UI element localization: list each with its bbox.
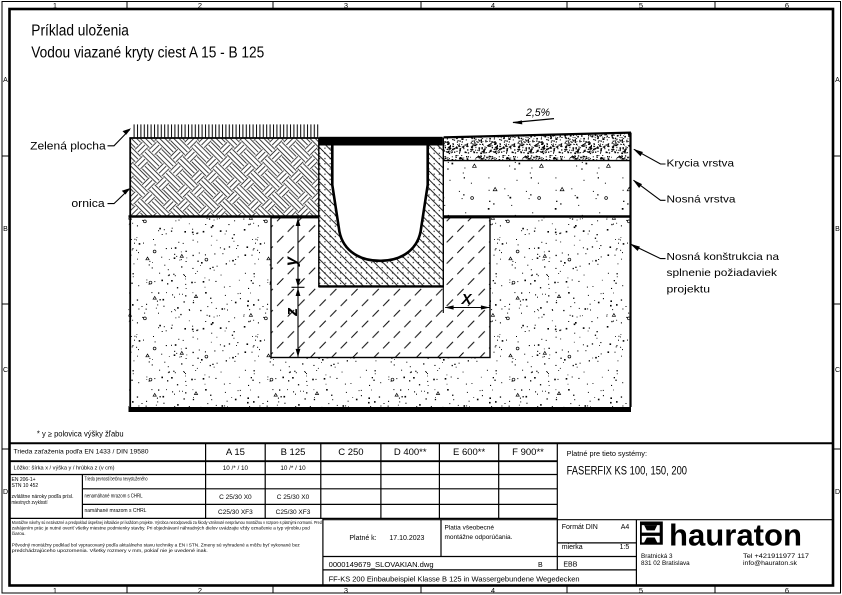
svg-text:zahájením prác je nutné overiť: zahájením prác je nutné overiť všetky mi… [12, 526, 310, 531]
svg-text:Príklad uloženia: Príklad uloženia [31, 23, 129, 40]
svg-text:namáhané mrazom s CHRL: namáhané mrazom s CHRL [85, 508, 147, 514]
svg-text:C 25/30 X0: C 25/30 X0 [219, 494, 252, 501]
svg-text:F 900**: F 900** [512, 447, 544, 458]
svg-text:Bratnická 3: Bratnická 3 [641, 553, 673, 560]
svg-text:ornica: ornica [71, 198, 105, 210]
svg-text:B: B [538, 562, 543, 569]
svg-text:Pővodný montážny podklad bol v: Pővodný montážny podklad bol vypracovaný… [12, 543, 301, 548]
svg-text:1: 1 [53, 586, 57, 595]
svg-text:B: B [835, 226, 840, 233]
svg-text:Vodou viazané kryty ciest A 15: Vodou viazané kryty ciest A 15 - B 125 [31, 45, 264, 62]
svg-text:Zelená plocha: Zelená plocha [30, 140, 107, 152]
svg-text:C: C [3, 367, 8, 374]
svg-text:Trieda zaťaženia podľa EN 1433: Trieda zaťaženia podľa EN 1433 / DIN 195… [14, 449, 150, 456]
svg-text:EBB: EBB [563, 562, 577, 569]
svg-text:Platné k:: Platné k: [349, 535, 376, 542]
svg-text:C 25/30 X0: C 25/30 X0 [277, 494, 310, 501]
svg-text:A 15: A 15 [226, 447, 245, 458]
svg-text:A: A [835, 77, 840, 84]
svg-text:mierka: mierka [562, 544, 583, 551]
svg-text:FASERFIX KS 100, 150, 200: FASERFIX KS 100, 150, 200 [567, 466, 687, 478]
svg-text:info@hauraton.sk: info@hauraton.sk [743, 560, 798, 567]
svg-text:z: z [283, 307, 301, 317]
svg-text:Montážne návrhy sú nezáväzné a: Montážne návrhy sú nezáväzné a predpokla… [12, 520, 322, 525]
svg-text:B: B [3, 226, 8, 233]
svg-text:predchádzajúceho upozornenia.: predchádzajúceho upozornenia. Všetky roz… [12, 548, 208, 553]
svg-text:C: C [835, 367, 840, 374]
svg-text:C25/30 XF3: C25/30 XF3 [276, 509, 311, 516]
svg-text:y: y [283, 256, 301, 267]
svg-text:10 /* / 10: 10 /* / 10 [223, 465, 249, 472]
svg-text:4: 4 [491, 586, 495, 595]
svg-text:5: 5 [639, 586, 643, 595]
svg-text:projektu: projektu [667, 283, 711, 295]
svg-text:A: A [3, 77, 8, 84]
svg-text:Tel +421911977 117: Tel +421911977 117 [743, 553, 810, 560]
svg-text:STN 10 452: STN 10 452 [12, 483, 39, 489]
svg-text:D: D [835, 489, 840, 496]
svg-text:čiarou.: čiarou. [12, 531, 26, 536]
svg-text:* y ≥ polovica výšky žľabu: * y ≥ polovica výšky žľabu [37, 430, 124, 439]
svg-text:10 /* / 10: 10 /* / 10 [280, 465, 306, 472]
svg-text:17.10.2023: 17.10.2023 [389, 535, 424, 542]
svg-text:D 400**: D 400** [394, 447, 427, 458]
svg-text:Krycia vrstva: Krycia vrstva [667, 158, 735, 170]
svg-text:Lôžko: šírka x / výška y / hrú: Lôžko: šírka x / výška y / hrúbka z (v c… [14, 466, 115, 472]
svg-text:C25/30 XF3: C25/30 XF3 [218, 509, 253, 516]
svg-text:Formát DIN: Formát DIN [562, 524, 598, 531]
svg-text:2,5%: 2,5% [525, 107, 550, 119]
svg-text:nenamáhané mrazom s CHRL: nenamáhané mrazom s CHRL [85, 493, 143, 499]
svg-text:Platia všeobecné: Platia všeobecné [445, 525, 495, 532]
svg-text:E 600**: E 600** [453, 447, 486, 458]
svg-text:Trieda pevnosti betónu nevystu: Trieda pevnosti betónu nevystuženého [85, 477, 148, 483]
svg-text:splnenie požiadaviek: splnenie požiadaviek [667, 267, 778, 279]
svg-text:A4: A4 [621, 524, 630, 531]
svg-text:Nosná vrstva: Nosná vrstva [667, 194, 736, 206]
svg-text:FF-KS 200 Einbaubeispiel Klass: FF-KS 200 Einbaubeispiel Klasse B 125 in… [329, 574, 580, 583]
svg-text:6: 6 [785, 586, 789, 595]
svg-text:D: D [3, 489, 8, 496]
svg-text:Nosná konštrukcia na: Nosná konštrukcia na [667, 251, 780, 263]
svg-text:X: X [460, 291, 472, 308]
svg-text:1:5: 1:5 [620, 544, 630, 551]
svg-text:831 02 Bratislava: 831 02 Bratislava [641, 560, 690, 567]
svg-text:C 250: C 250 [338, 447, 363, 458]
svg-text:montážne odporúčania.: montážne odporúčania. [445, 534, 513, 541]
svg-text:2: 2 [198, 586, 202, 595]
svg-text:miestnych zvyklostí: miestnych zvyklostí [12, 500, 49, 506]
svg-text:3: 3 [344, 586, 348, 595]
svg-text:B 125: B 125 [281, 447, 306, 458]
svg-text:Platné pre tieto systémy:: Platné pre tieto systémy: [567, 449, 647, 458]
svg-text:hauraton: hauraton [669, 518, 802, 553]
svg-text:0000149679_SLOVAKIAN.dwg: 0000149679_SLOVAKIAN.dwg [329, 560, 434, 569]
